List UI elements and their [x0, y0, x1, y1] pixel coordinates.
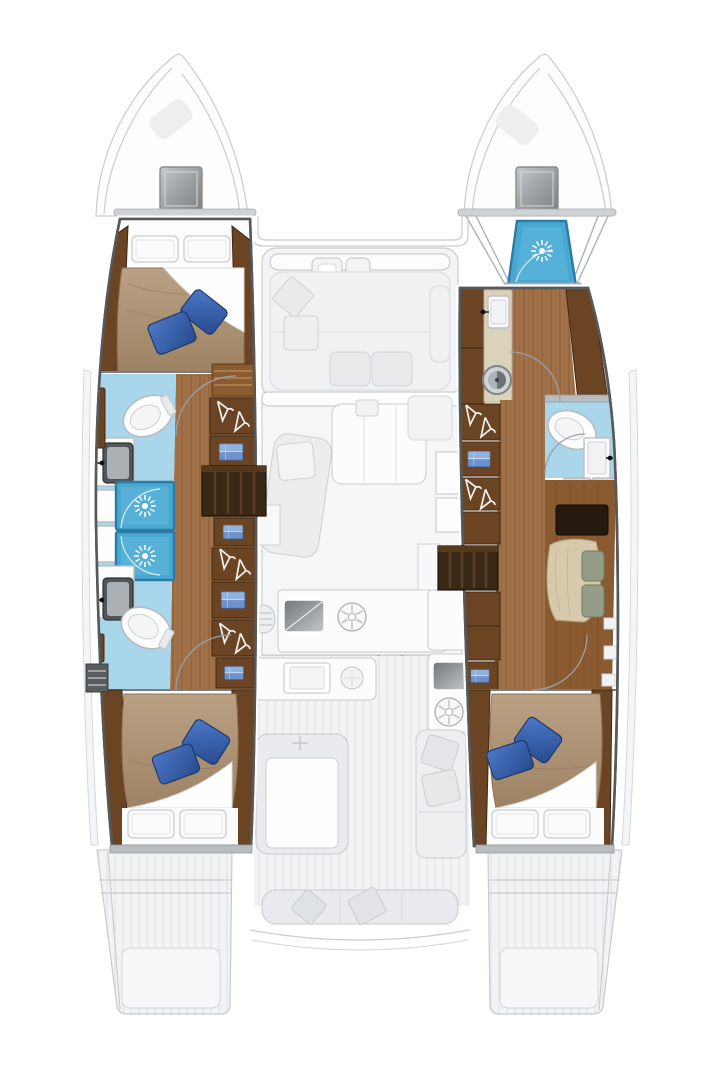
- folded-clothes-icon: [471, 670, 489, 683]
- washing-machine-icon: [483, 366, 511, 394]
- deck-hatch-icon: [516, 167, 558, 211]
- desk: [556, 505, 608, 535]
- starboard-cabin-sill: [476, 845, 614, 853]
- locker: [460, 512, 500, 544]
- stair-landing: [418, 544, 440, 590]
- port-transom: [97, 850, 232, 1014]
- hanger-locker: [212, 620, 256, 656]
- port-aft-cabin: [96, 690, 256, 846]
- burner-icon: [338, 603, 366, 631]
- hanger-locker: [210, 398, 256, 434]
- galley: [253, 590, 470, 652]
- folded-clothes-icon: [468, 451, 490, 466]
- starboard-toilet-compartment: [542, 395, 617, 490]
- folded-clothes-icon: [221, 592, 244, 608]
- port-hull-interior: [88, 219, 256, 846]
- folded-clothes-icon: [225, 667, 244, 680]
- deck-hatch-icon: [160, 167, 202, 211]
- sink-icon: [433, 662, 467, 690]
- port-shower-stalls: [116, 482, 174, 580]
- salon: [253, 392, 470, 663]
- starboard-companionway-stairs: [438, 546, 498, 590]
- seat-pillow: [284, 316, 318, 350]
- seat-pillow: [408, 396, 452, 440]
- starboard-aft-cabin: [460, 690, 616, 846]
- catamaran-floor-plan: [0, 0, 720, 1080]
- cockpit-table: [256, 734, 348, 854]
- port-forward-cabin: [96, 219, 256, 374]
- burner-icon: [435, 698, 463, 726]
- port-bow: [96, 54, 256, 216]
- hanger-locker: [460, 404, 500, 440]
- starboard-desk-settee: [545, 480, 617, 690]
- deck-plan-svg: [0, 0, 720, 1080]
- folded-clothes-icon: [219, 444, 242, 460]
- port-cabin-sill: [110, 845, 252, 853]
- stern-bench: [262, 887, 458, 926]
- seat-cushion: [582, 551, 604, 581]
- starboard-side-deck: [622, 370, 638, 845]
- starboard-bow-shower: [505, 221, 581, 289]
- port-boarding-gate: [86, 664, 108, 692]
- cockpit-bench: [416, 730, 466, 858]
- port-wardrobes: [210, 364, 256, 688]
- starboard-transom: [488, 850, 622, 1014]
- starboard-corridor-floor: [494, 400, 545, 690]
- swim-step: [122, 948, 220, 1008]
- port-companionway-stairs: [202, 466, 266, 516]
- swim-step: [500, 948, 598, 1008]
- seat-pillow: [421, 769, 461, 807]
- aft-cockpit: [250, 654, 470, 950]
- forward-cockpit: [262, 248, 458, 398]
- sink-icon: [588, 442, 606, 474]
- folded-clothes-icon: [223, 525, 243, 539]
- shelf-unit: [212, 364, 254, 396]
- hanger-locker: [212, 548, 256, 580]
- seat-cushion: [582, 585, 604, 617]
- starboard-forward-washroom: [458, 288, 608, 410]
